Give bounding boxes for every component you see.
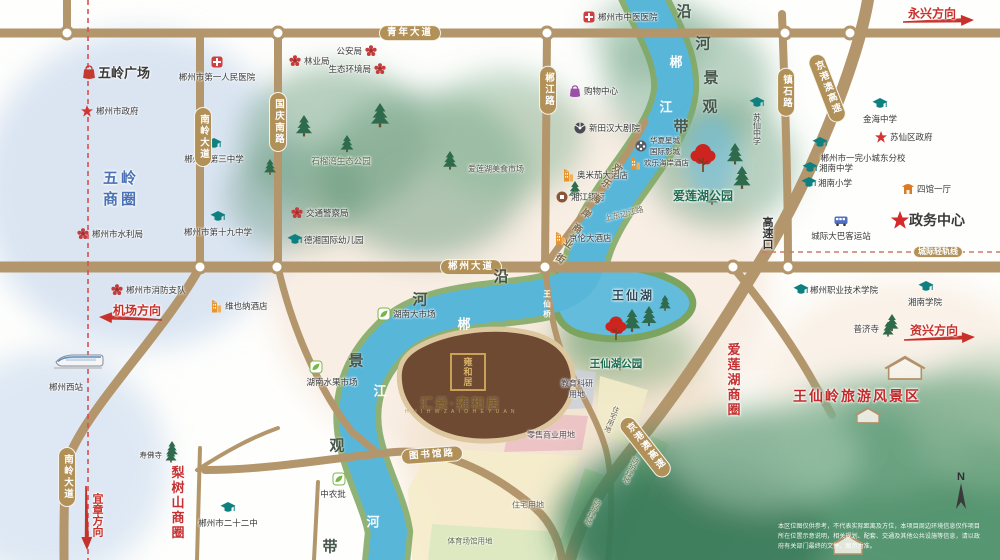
poi-label: 湘南中学 xyxy=(819,162,853,174)
street-name-char: 街 xyxy=(553,250,569,267)
poi-cap-icon xyxy=(802,177,817,189)
riverside-greenway-char: 观 xyxy=(329,435,344,456)
poi-gov-icon xyxy=(111,284,123,296)
map-label: 梨树山商圈 xyxy=(168,466,187,541)
riverside-greenway-char: 带 xyxy=(673,116,688,137)
poi-label: 郴州市水利局 xyxy=(92,228,143,240)
poi-label: 郴州市第一人民医院 xyxy=(179,71,256,83)
poi-gov-icon xyxy=(365,45,377,57)
poi-cap-icon xyxy=(221,502,236,514)
poi-label: 湖南大市场 xyxy=(393,308,436,320)
map-label: 住宅用地 xyxy=(601,404,621,434)
poi-gov-icon xyxy=(291,207,303,219)
poi-label: 郴州市中医医院 xyxy=(598,11,658,23)
river-name-char: 郴 xyxy=(457,314,470,333)
poi-cap-icon xyxy=(803,162,818,174)
map-label: 爱莲湖商圈 xyxy=(724,343,743,418)
riverside-greenway-char: 带 xyxy=(322,536,337,557)
riverside-greenway-char: 河 xyxy=(412,289,427,310)
poi-bag-icon xyxy=(82,65,97,80)
poi-gov-icon xyxy=(289,55,301,67)
poi-label: 维也纳酒店 xyxy=(225,300,268,312)
poi-label: 中农批 xyxy=(320,488,346,500)
poi-cap-icon xyxy=(873,98,888,110)
poi-pine-icon xyxy=(883,322,894,337)
poi-label: 金海中学 xyxy=(863,113,897,125)
poi-label: 华夏星城 国际影城 xyxy=(650,135,680,157)
poi-label: 公安局 xyxy=(336,45,362,57)
riverside-greenway-char: 景 xyxy=(348,350,363,371)
poi-bigstar-icon xyxy=(890,210,910,230)
poi-label: 郴州市消防支队 xyxy=(126,284,186,296)
poi-cinema-icon xyxy=(635,140,647,152)
poi-hospital-icon xyxy=(211,56,223,68)
riverside-greenway-char: 沿 xyxy=(676,1,691,22)
poi-hotel-icon xyxy=(210,300,222,313)
poi-gov-icon xyxy=(77,228,89,240)
poi-label: 郴州市第十九中学 xyxy=(184,226,252,238)
poi-star-icon xyxy=(81,105,94,118)
poi-label: 德湘国际幼儿园 xyxy=(304,234,364,246)
poi-label: 王仙湖公园 xyxy=(590,356,643,371)
location-map: 五岭广场郴州市政府郴州市第一人民医院郴州市中医医院公安局林业局生态环境局郴州市第… xyxy=(0,0,1000,560)
riverside-greenway-char: 景 xyxy=(703,67,718,88)
map-label: 宜章方向 xyxy=(89,493,105,537)
map-disclaimer: 本区位图仅供参考，不代表实际距离及方位，本项目周边环境信息仅作项目所在位置示意说… xyxy=(778,521,982,551)
poi-cap-icon xyxy=(813,137,828,149)
map-label: 教育科研 用地 xyxy=(561,378,593,400)
poi-label: 生态环境局 xyxy=(328,63,371,75)
map-label: 王仙湖 xyxy=(612,287,654,304)
map-label: 零售商业用地 xyxy=(527,430,575,441)
poi-label: 政务中心 xyxy=(909,210,965,230)
map-label: 王仙岭旅游风景区 xyxy=(793,386,921,406)
poi-cap-icon xyxy=(211,211,226,223)
poi-label: 苏仙中学 xyxy=(752,113,763,145)
riverside-greenway-char: 河 xyxy=(695,33,710,54)
map-label: 体育场馆用地 xyxy=(448,536,493,547)
poi-pine-icon xyxy=(166,448,177,463)
river-name-char: 江 xyxy=(373,381,386,400)
poi-hotel-icon xyxy=(562,169,574,182)
street-name-char: 岸 xyxy=(579,205,595,222)
riverside-greenway-char: 观 xyxy=(702,96,717,117)
poi-label: 五岭广场 xyxy=(98,63,150,82)
poi-label: 林业局 xyxy=(304,55,330,67)
map-label: 防护绿地 xyxy=(582,497,603,527)
poi-theater-icon xyxy=(574,122,586,134)
poi-label: 湘南学院 xyxy=(908,296,942,308)
map-label: 石榴湾生态公园 xyxy=(311,155,371,167)
compass-north-icon: N xyxy=(952,472,970,514)
map-overlay: 五岭广场郴州市政府郴州市第一人民医院郴州市中医医院公安局林业局生态环境局郴州市第… xyxy=(0,0,1000,560)
river-name-char: 河 xyxy=(366,512,379,531)
poi-label: 交通警察局 xyxy=(306,207,349,219)
poi-market-icon xyxy=(333,473,346,486)
river-name-char: 郴 xyxy=(669,52,682,71)
compass-label: N xyxy=(952,472,970,483)
poi-label: 郴州市二十二中 xyxy=(198,517,258,529)
poi-label: 城际大巴客运站 xyxy=(811,230,871,242)
road-badge: 城际轻轨线 xyxy=(913,246,963,258)
river-name-char: 江 xyxy=(659,97,672,116)
poi-label: 四馆一厅 xyxy=(917,183,951,195)
poi-label: 郴州职业技术学院 xyxy=(810,284,878,296)
map-label: 机场方向 xyxy=(113,302,161,319)
poi-star-icon xyxy=(875,131,888,144)
map-label: 高速口 xyxy=(759,217,775,250)
road-badge: 图书馆路 xyxy=(401,445,464,465)
poi-hotel-icon xyxy=(629,157,641,170)
road-badge: 镇石路 xyxy=(777,68,795,117)
riverside-greenway-char: 沿 xyxy=(493,266,508,287)
poi-market-icon xyxy=(310,361,323,374)
road-badge: 京港澳高速 xyxy=(806,51,848,124)
poi-label: 爱莲湖公园 xyxy=(673,187,733,204)
poi-label: 湖南水果市场 xyxy=(306,376,357,388)
poi-label: 寿佛寺 xyxy=(140,450,163,461)
poi-label: 湘南小学 xyxy=(818,177,852,189)
road-badge: 青年大道 xyxy=(379,25,441,41)
road-badge: 南岭大道 xyxy=(58,447,76,507)
bridge-name-char: 桥 xyxy=(543,309,551,320)
map-label: 资兴方向 xyxy=(910,322,958,339)
poi-label: 郴州西站 xyxy=(49,381,83,393)
poi-gov-icon xyxy=(374,63,386,75)
poi-market-icon xyxy=(378,308,391,321)
poi-label: 普济寺 xyxy=(853,323,879,335)
map-label: 爱莲湖美食市场 xyxy=(468,164,524,175)
poi-cap-icon xyxy=(750,97,765,109)
map-label: 防护绿地 xyxy=(620,455,641,485)
poi-bank-icon xyxy=(556,191,568,203)
poi-label: 欢乐海岸酒店 xyxy=(644,158,689,169)
disclaimer-line: 本区位图仅供参考，不代表实际距离及方位，本项目周边环境信息仅作项目 xyxy=(778,522,980,529)
project-seal-logo: 雍和居 xyxy=(450,353,486,391)
poi-label: 购物中心 xyxy=(584,85,618,97)
poi-hospital-icon xyxy=(583,11,595,23)
map-label: 上东边江路 xyxy=(603,204,644,224)
road-badge: 南岭大道 xyxy=(194,107,212,167)
map-label: 永兴方向 xyxy=(908,5,956,22)
map-label: 住宅用地 xyxy=(512,500,544,511)
poi-mall-icon xyxy=(569,85,582,98)
project-name-english: H U I H W Z A I O H E Y U A N xyxy=(388,409,533,415)
disclaimer-line: 所在位置示意说明，相关规划、配套、交通及其他公共设施等信 xyxy=(778,532,949,539)
poi-label: 苏仙区政府 xyxy=(890,131,933,143)
poi-bus-icon xyxy=(834,216,848,227)
poi-cap-icon xyxy=(919,281,934,293)
poi-label: 郴州市政府 xyxy=(96,105,139,117)
poi-cap-icon xyxy=(794,284,809,296)
poi-label: 新田汉大剧院 xyxy=(589,122,640,134)
map-label: 五岭 商圈 xyxy=(103,167,139,209)
poi-train-icon xyxy=(52,353,104,371)
road-badge: 郴江路 xyxy=(539,66,557,115)
poi-cap-icon xyxy=(288,234,303,246)
poi-pav-icon xyxy=(901,183,915,195)
road-badge: 国庆南路 xyxy=(269,92,287,152)
